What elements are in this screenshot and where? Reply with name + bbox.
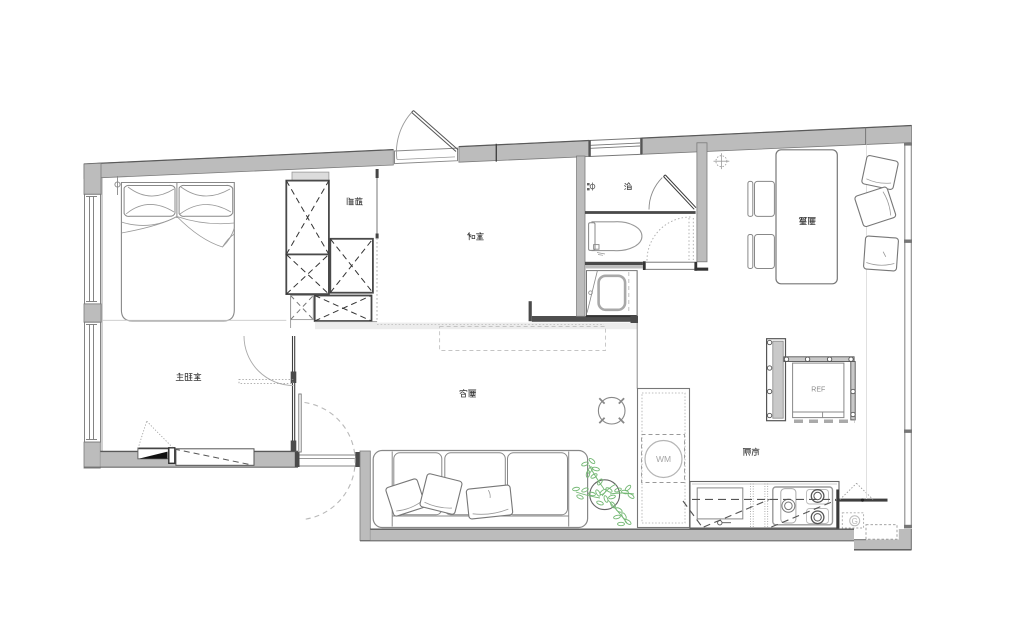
svg-text:REF: REF xyxy=(811,387,825,394)
svg-text:WM: WM xyxy=(656,454,671,464)
svg-text:G: G xyxy=(852,517,858,526)
